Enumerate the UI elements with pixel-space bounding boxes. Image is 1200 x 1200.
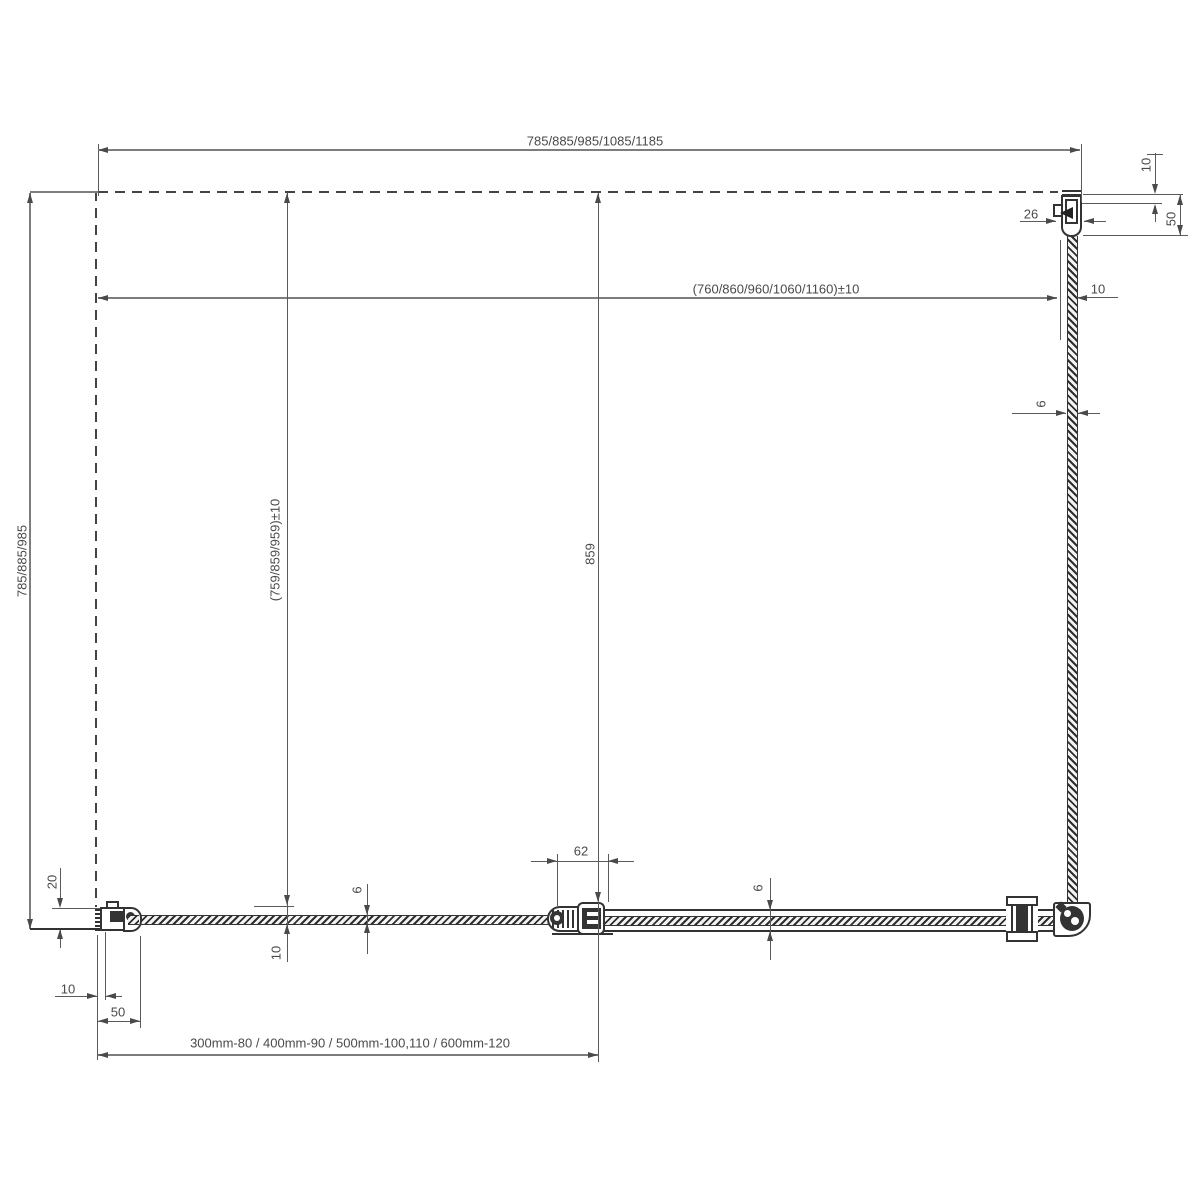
- arrowhead: [87, 993, 97, 999]
- dim-bottom-gap-10: 10: [61, 983, 75, 996]
- dim-front-offset: 10: [270, 946, 283, 960]
- dim-bottom-profile-50: 50: [111, 1006, 125, 1019]
- pivot-clamp-slot: [587, 920, 598, 924]
- arrowhead: [130, 1018, 140, 1024]
- clamp-plate-right: [1026, 904, 1033, 933]
- arrowhead: [98, 1018, 108, 1024]
- support-bar-bottom-edge: [603, 930, 1057, 932]
- ref-line: [1082, 203, 1162, 204]
- dim-tick: [52, 908, 100, 909]
- connector-hub-center: [554, 915, 560, 921]
- clamp-plate-left: [1011, 904, 1018, 933]
- dim-line: [598, 193, 599, 1062]
- dim-glass-6-side: 6: [1035, 400, 1048, 407]
- profile-clamp-detail: [1060, 207, 1073, 219]
- dim-line: [98, 1054, 598, 1056]
- arrowhead: [608, 858, 618, 864]
- arrowhead: [27, 193, 33, 203]
- dim-right-profile: 50: [1165, 212, 1178, 226]
- dim-depth-inner: (759/859/959)±10: [269, 499, 282, 602]
- arrowhead: [1152, 204, 1158, 214]
- dim-hinge-62: 62: [574, 845, 588, 858]
- arrowhead: [595, 193, 601, 203]
- dim-glass-width: (760/860/960/1060/1160)±10: [693, 283, 860, 296]
- arrowhead: [767, 900, 773, 910]
- dim-tick: [30, 191, 98, 193]
- dim-size-note: 300mm-80 / 400mm-90 / 500mm-100,110 / 60…: [190, 1037, 510, 1050]
- corner-hinge-cutout: [1071, 917, 1079, 925]
- support-bar-top-edge: [603, 909, 1057, 911]
- arrowhead: [547, 858, 557, 864]
- dim-door-glass: 859: [584, 543, 597, 565]
- ext-line: [1081, 144, 1082, 202]
- arrowhead: [57, 929, 63, 939]
- arrowhead: [364, 923, 370, 933]
- ext-line: [97, 935, 98, 1060]
- ext-line: [105, 932, 106, 1000]
- dim-line: [287, 193, 288, 962]
- dim-tick: [30, 928, 102, 930]
- ext-line: [140, 936, 141, 1028]
- arrowhead: [1084, 218, 1094, 224]
- front-fixed-glass-left: [138, 915, 557, 925]
- clamp-glass-core: [128, 915, 139, 925]
- arrowhead: [1077, 295, 1087, 301]
- dim-right-offset: 10: [1140, 158, 1153, 172]
- arrowhead: [1078, 410, 1088, 416]
- arrowhead: [284, 924, 290, 934]
- arrowhead: [588, 1052, 598, 1058]
- profile-clamp-detail: [110, 911, 123, 922]
- arrowhead: [1070, 147, 1080, 153]
- arrowhead: [284, 193, 290, 203]
- arrowhead: [1152, 184, 1158, 194]
- dim-tick: [254, 906, 294, 907]
- ref-line: [1083, 194, 1183, 195]
- arrowhead: [98, 1052, 108, 1058]
- pivot-clamp-slot: [587, 912, 598, 916]
- arrowhead: [364, 905, 370, 915]
- dim-line: [367, 884, 368, 954]
- arrowhead: [98, 295, 108, 301]
- dim-profile-26: 26: [1024, 208, 1038, 221]
- dim-glass-6-front-right: 6: [752, 884, 765, 891]
- arrowhead: [57, 898, 63, 908]
- wall-line-top: [98, 191, 1058, 193]
- arrowhead: [767, 931, 773, 941]
- side-glass-panel: [1067, 236, 1078, 906]
- arrowhead: [98, 147, 108, 153]
- arrowhead: [1056, 410, 1066, 416]
- connector-base-line: [552, 933, 613, 935]
- dim-depth-left: 785/885/985: [16, 525, 29, 597]
- profile-top-bump: [106, 901, 119, 909]
- dim-line: [98, 149, 1080, 151]
- installation-diagram: 785/885/985/1085/1185 785/885/985 (760/8…: [0, 0, 1200, 1200]
- dim-line: [98, 297, 1057, 299]
- dim-glass-6-front-left: 6: [351, 886, 364, 893]
- wall-line-left: [95, 191, 97, 907]
- arrowhead: [595, 892, 601, 902]
- dim-top-width: 785/885/985/1085/1185: [527, 135, 663, 148]
- arrowhead: [1047, 295, 1057, 301]
- dim-line: [770, 878, 771, 960]
- clamp-post: [1018, 904, 1026, 933]
- arrowhead: [1046, 218, 1056, 224]
- arrowhead: [1177, 225, 1183, 235]
- dim-tick: [1083, 235, 1188, 236]
- ext-line: [1060, 240, 1061, 340]
- arrowhead: [284, 895, 290, 905]
- dim-line: [60, 868, 61, 899]
- dim-wall-profile-20: 20: [46, 875, 59, 889]
- arrowhead: [106, 993, 116, 999]
- front-fixed-glass-right: [603, 916, 1055, 926]
- dim-right-gap: 10: [1091, 283, 1105, 296]
- arrowhead: [1177, 195, 1183, 205]
- corner-hinge-cutout: [1064, 910, 1071, 917]
